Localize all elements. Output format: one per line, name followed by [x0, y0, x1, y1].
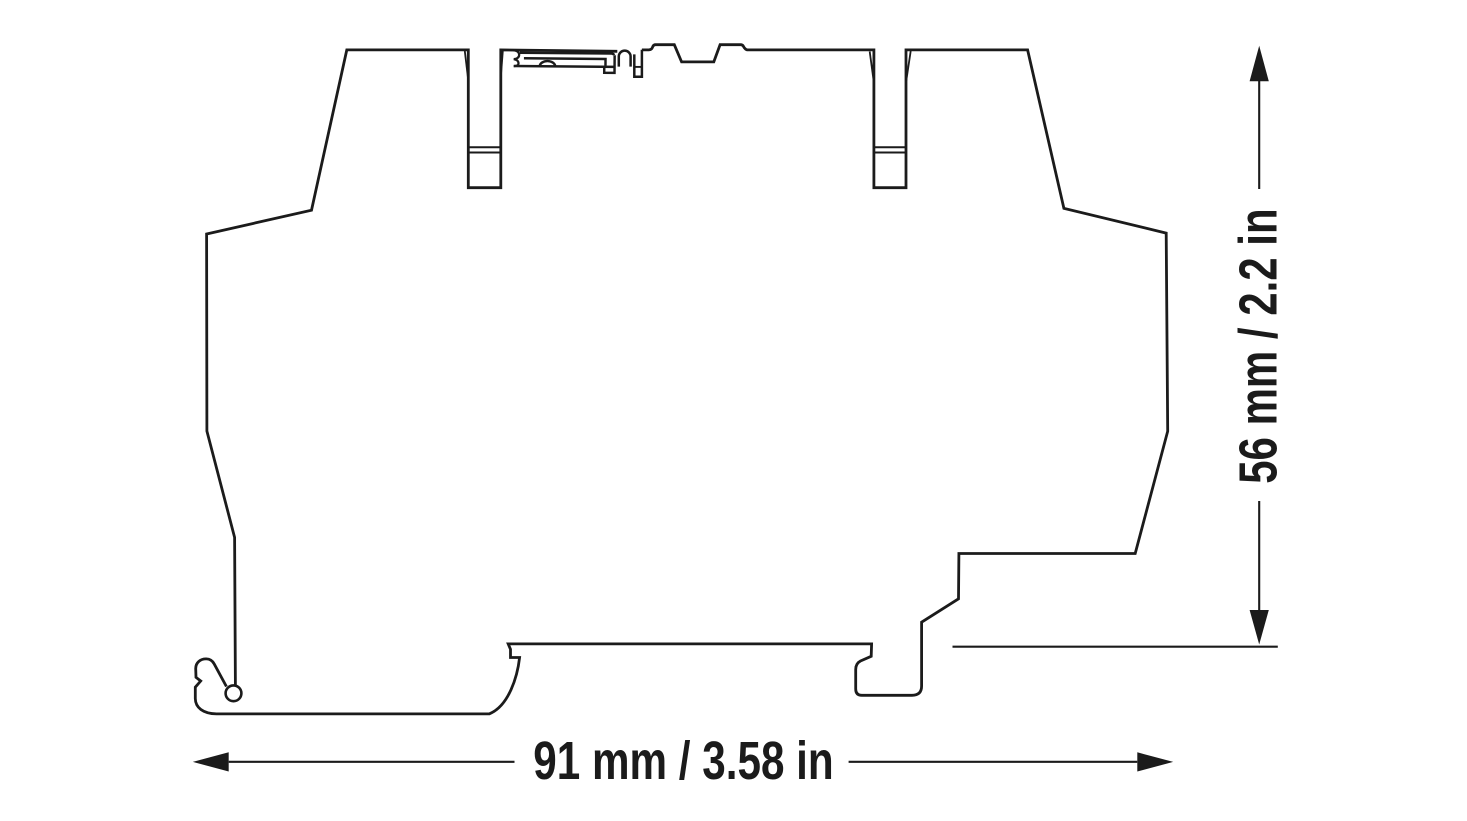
svg-text:91 mm / 3.58 in: 91 mm / 3.58 in	[533, 731, 833, 791]
svg-text:56 mm / 2.2 in: 56 mm / 2.2 in	[1229, 208, 1289, 483]
